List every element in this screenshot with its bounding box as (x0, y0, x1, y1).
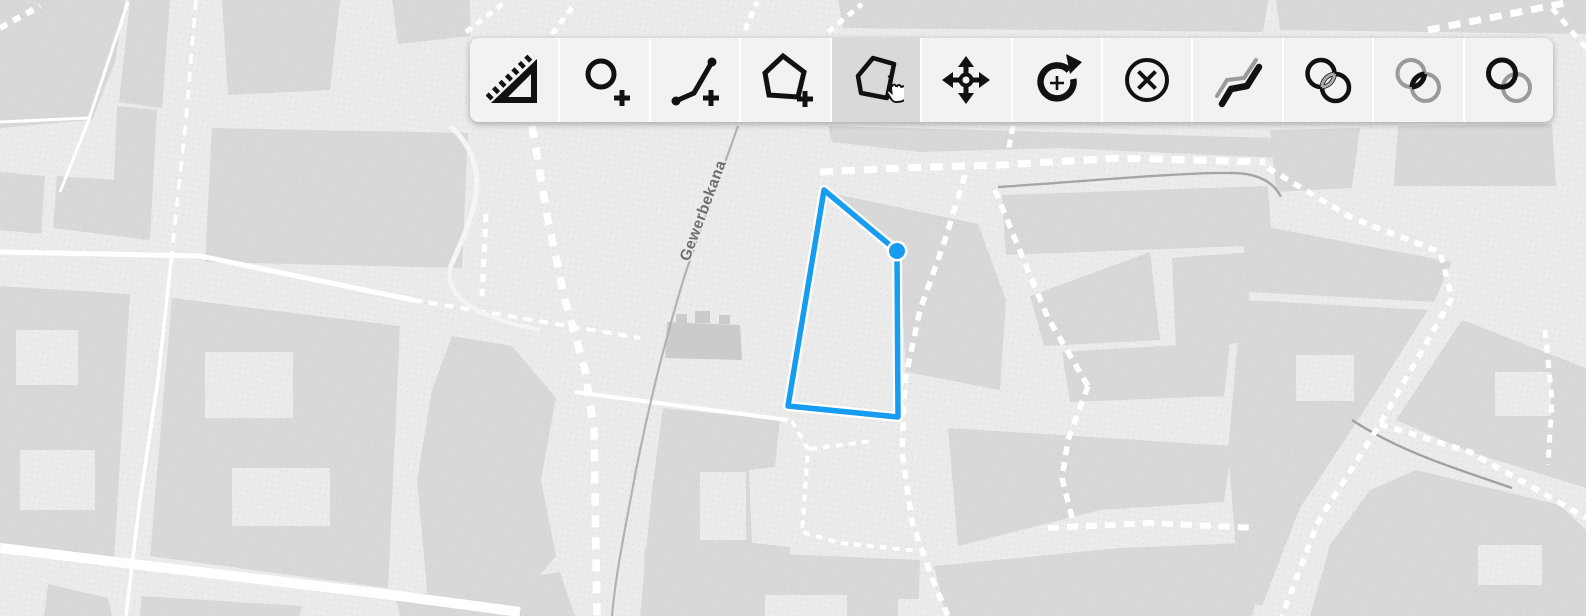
circle-x-icon (1119, 52, 1175, 108)
draw-point-button[interactable] (560, 38, 648, 122)
polygon-hand-icon (848, 52, 904, 108)
difference-button[interactable] (1465, 38, 1553, 122)
move-arrows-icon (938, 52, 994, 108)
ruler-triangle-icon (486, 52, 542, 108)
draw-polygon-button[interactable] (741, 38, 829, 122)
map-editor: Gewerbekana (0, 0, 1586, 616)
intersection-circles-icon (1390, 52, 1446, 108)
offset-lines-icon (1210, 52, 1266, 108)
rotate-arrow-icon (1029, 52, 1085, 108)
difference-circles-icon (1481, 52, 1537, 108)
delete-button[interactable] (1103, 38, 1191, 122)
topology-button[interactable] (1193, 38, 1281, 122)
draw-line-button[interactable] (651, 38, 739, 122)
union-button[interactable] (1284, 38, 1372, 122)
circle-plus-icon (577, 52, 633, 108)
rotate-button[interactable] (1013, 38, 1101, 122)
measure-button[interactable] (470, 38, 558, 122)
modify-button[interactable] (832, 38, 920, 122)
editor-toolbar (470, 38, 1553, 122)
polyline-plus-icon (667, 52, 723, 108)
feature-vertex-handle[interactable] (887, 241, 908, 262)
intersection-button[interactable] (1374, 38, 1462, 122)
union-circles-icon (1300, 52, 1356, 108)
move-button[interactable] (922, 38, 1010, 122)
polygon-plus-icon (757, 52, 813, 108)
